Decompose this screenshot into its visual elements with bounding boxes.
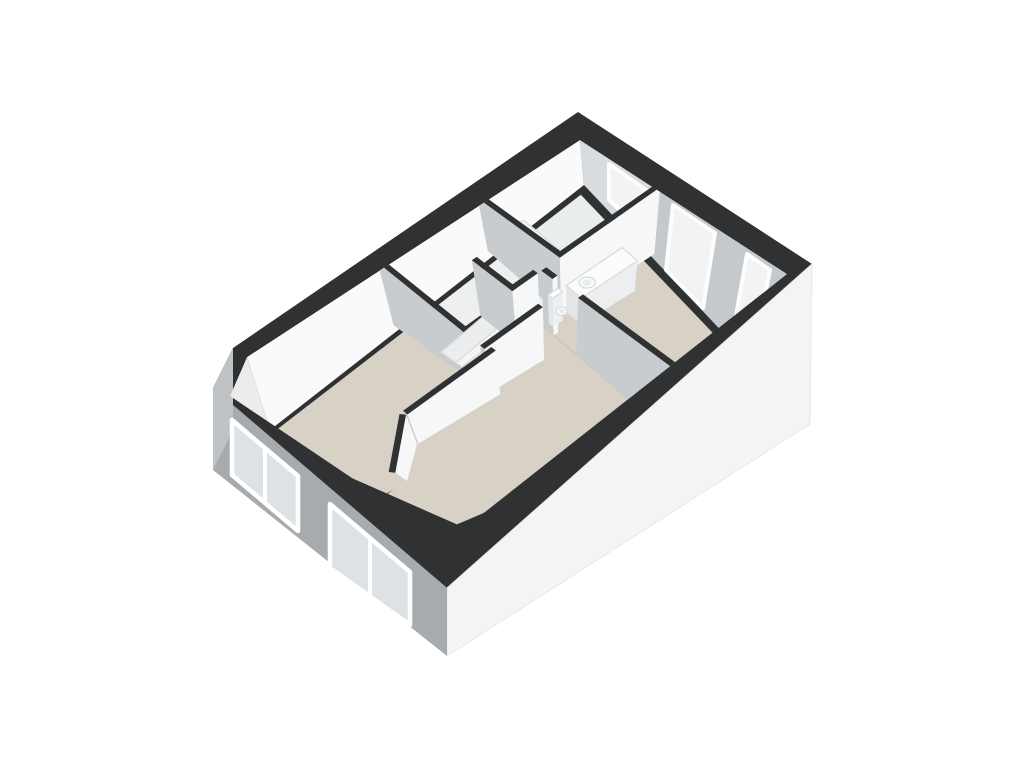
sink-basin: [579, 277, 595, 288]
toilet-bowl: [556, 307, 567, 315]
floor-plan-svg: [0, 0, 1024, 768]
toilet-bowl-inner: [559, 309, 565, 314]
floor-plan-stage: [0, 0, 1024, 768]
sink-basin-inner: [582, 279, 591, 285]
